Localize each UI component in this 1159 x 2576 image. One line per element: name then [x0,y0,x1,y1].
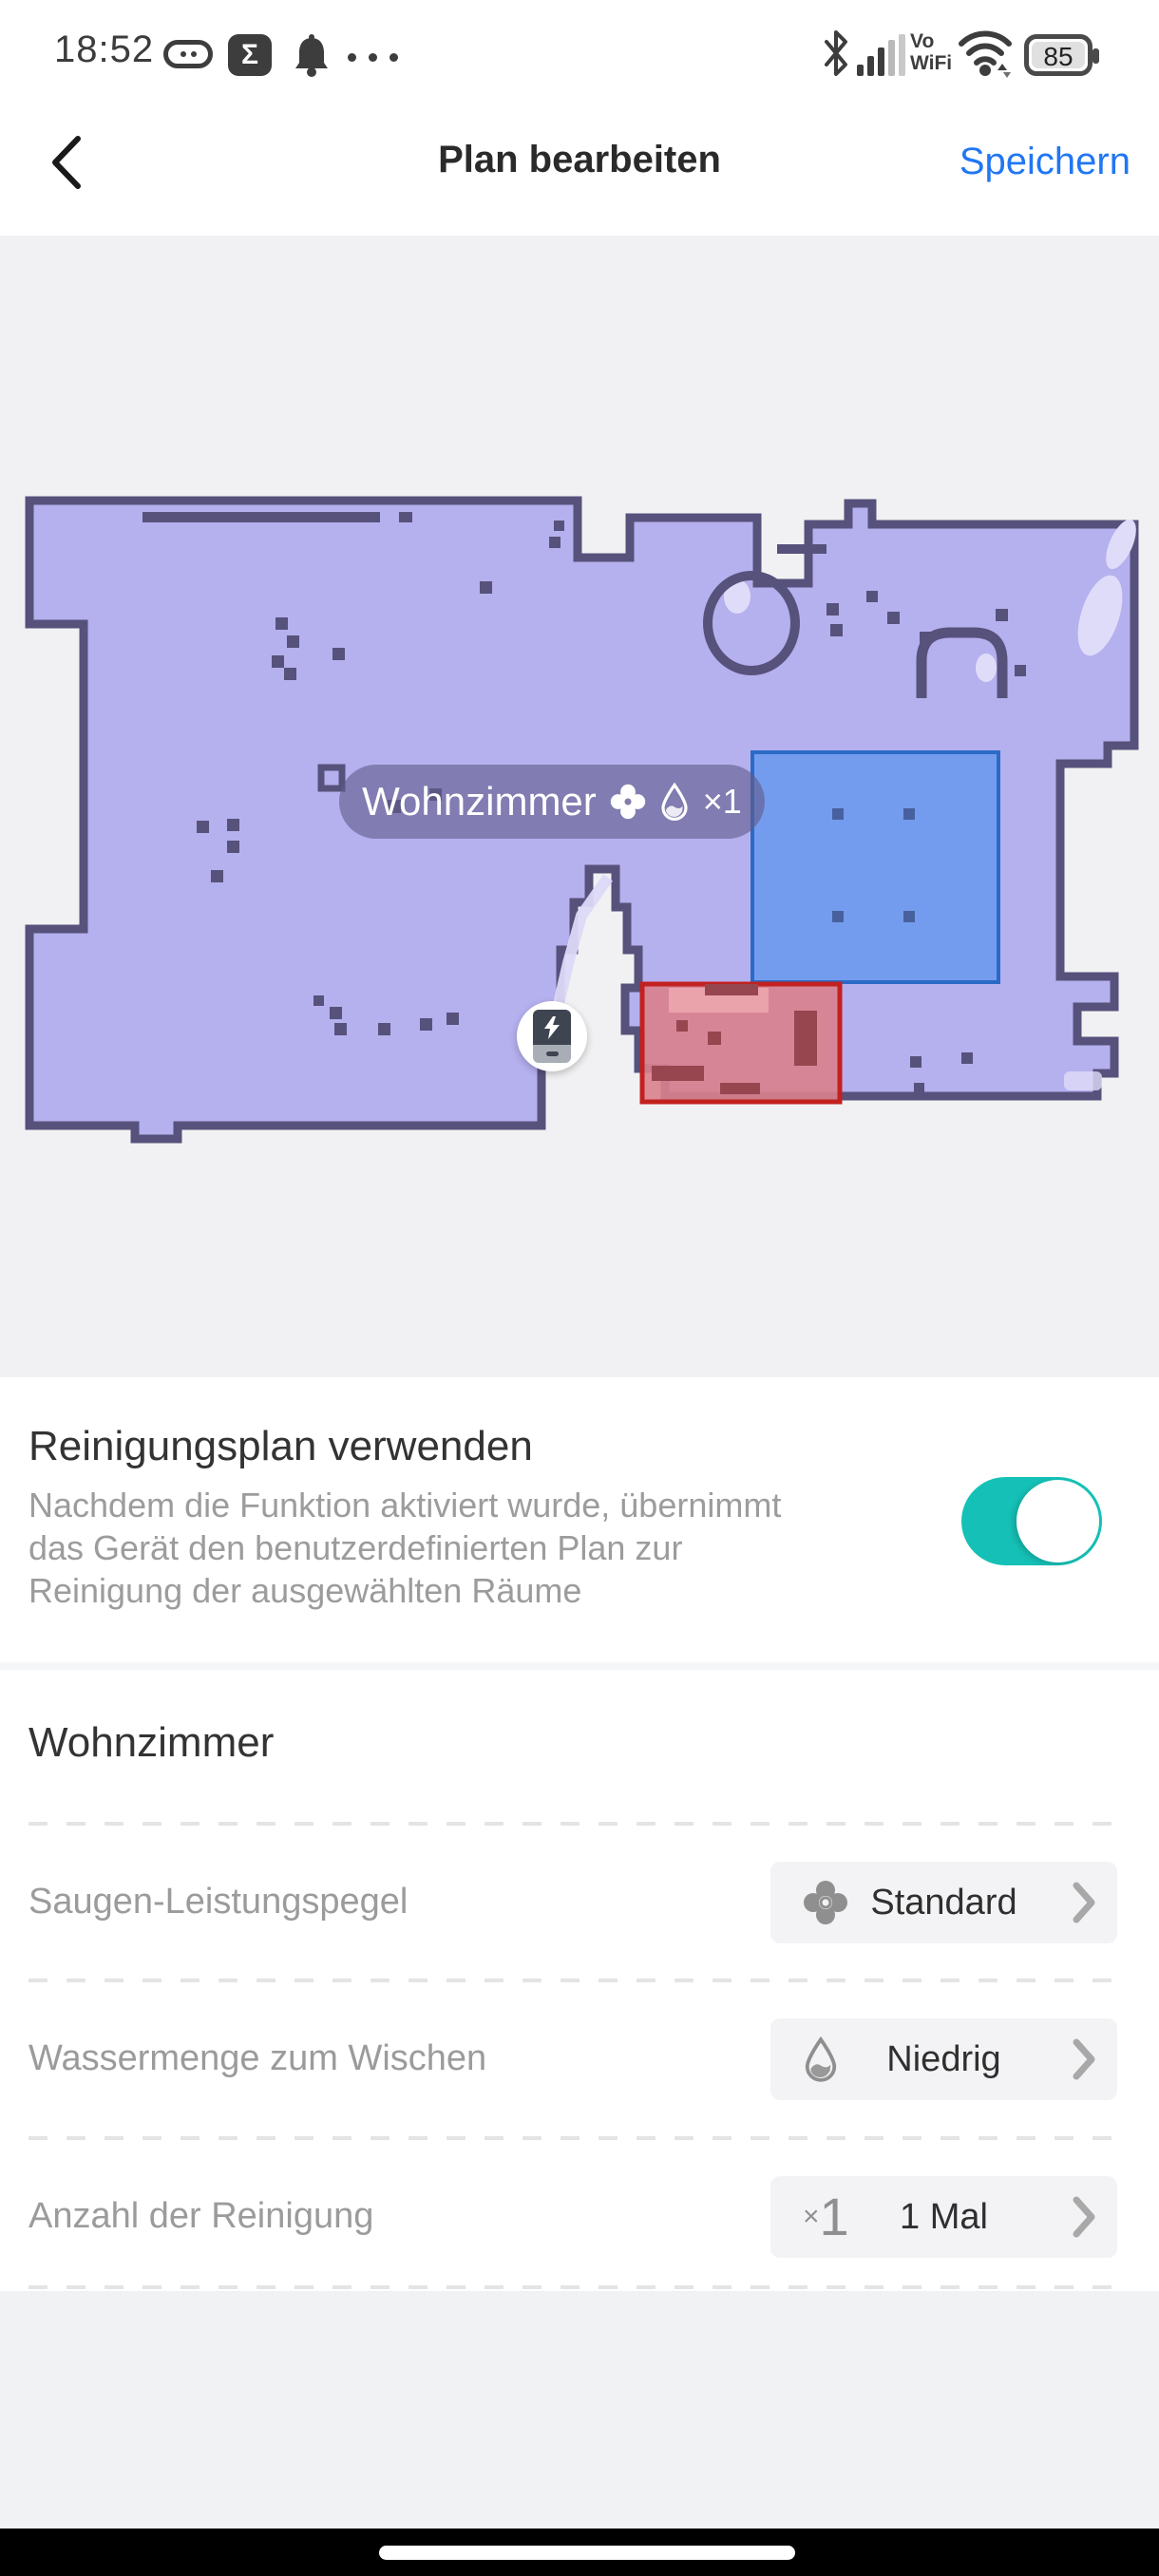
water-level-value: Niedrig [770,2018,1117,2100]
chevron-right-icon [1072,1881,1096,1924]
floor-map-area[interactable]: Wohnzimmer ×1 [0,236,1159,1377]
room-settings-section: Wohnzimmer Saugen-Leistungspegel Standar… [0,1670,1159,2291]
bottom-spacer [0,2291,1159,2529]
dashed-divider [28,2136,1130,2140]
bluetooth-icon [823,28,849,78]
dock-icon[interactable] [517,1001,587,1071]
app-screen: 18:52 Σ Vo WiFi 85 [0,0,1159,2576]
sim-toolkit-icon [163,40,213,68]
wifi-icon [958,28,1013,80]
suction-level-selector[interactable]: Standard [770,1862,1117,1943]
dashed-divider [28,1979,1130,1982]
cleaning-plan-title: Reinigungsplan verwenden [28,1423,533,1470]
clean-count-selector[interactable]: ×1 1 Mal [770,2176,1117,2258]
cleaning-plan-toggle[interactable] [961,1477,1102,1565]
chevron-right-icon [1072,2037,1096,2081]
header: Plan bearbeiten Speichern [0,104,1159,236]
notification-bell-icon [291,34,332,80]
room-label-pill[interactable]: Wohnzimmer ×1 [339,765,765,839]
cleaning-plan-description: Nachdem die Funktion aktiviert wurde, üb… [28,1484,836,1612]
gesture-nav-bar [0,2529,1159,2576]
toggle-knob [1016,1480,1099,1563]
cleaning-plan-section: Reinigungsplan verwenden Nachdem die Fun… [0,1377,1159,1662]
home-indicator[interactable] [379,2546,795,2560]
lightning-bolt-icon [542,1015,561,1040]
water-drop-icon [659,783,690,821]
vowifi-indicator: Vo WiFi [910,30,952,74]
clean-count-text: ×1 [703,782,742,822]
more-notifications-icon [348,53,398,62]
row-label-count: Anzahl der Reinigung [28,2196,373,2237]
battery-icon: 85 [1024,34,1092,76]
save-button[interactable]: Speichern [959,141,1130,183]
dashed-divider [28,1822,1130,1826]
clock: 18:52 [54,28,154,71]
suction-level-value: Standard [770,1862,1117,1943]
chevron-right-icon [1072,2195,1096,2239]
fan-icon [610,784,646,820]
section-divider [0,1662,1159,1670]
room-label-text: Wohnzimmer [362,779,597,824]
row-label-water: Wassermenge zum Wischen [28,2038,486,2079]
battery-percent: 85 [1029,42,1088,72]
room-section-title: Wohnzimmer [28,1719,274,1767]
row-label-suction: Saugen-Leistungspegel [28,1882,408,1923]
cell-signal-icon [857,34,905,76]
sigma-app-icon: Σ [228,34,272,76]
selected-zone-rect[interactable] [752,752,998,982]
water-level-selector[interactable]: Niedrig [770,2018,1117,2100]
clean-count-value: 1 Mal [770,2176,1117,2258]
status-bar: 18:52 Σ Vo WiFi 85 [0,0,1159,104]
dashed-divider [28,2285,1130,2289]
